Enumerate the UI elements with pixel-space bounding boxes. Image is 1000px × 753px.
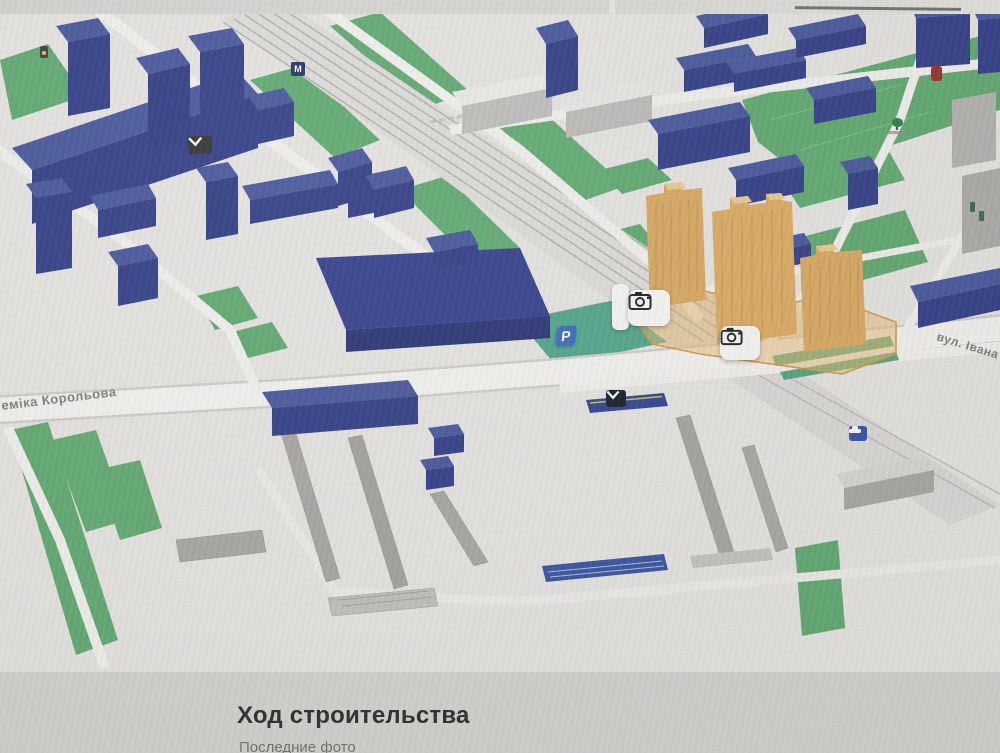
construction-progress-section: Ход строительства Последние фото (0, 672, 1000, 753)
section-subtext: Последние фото (0, 739, 1000, 753)
screen-glare (610, 0, 615, 14)
parking-icon[interactable]: P (555, 325, 577, 347)
small-poi-icon (40, 46, 48, 58)
metro-icon[interactable] (606, 390, 626, 407)
red-poi-icon[interactable] (931, 66, 942, 81)
metro-chevron-icon (188, 136, 204, 148)
window-edge-artifact (795, 6, 961, 11)
tree-trunk (896, 127, 898, 130)
camera-marker-partial[interactable] (612, 284, 629, 330)
tree-icon[interactable] (891, 118, 903, 134)
metro-label: M (294, 64, 302, 74)
metro-chevron-icon (606, 390, 620, 400)
car-glyph (849, 426, 861, 434)
screen-photo: еміка Корольова вул. Івана P (0, 0, 1000, 753)
map-svg: еміка Корольова вул. Івана (0, 0, 1000, 672)
traffic-light-icon (979, 211, 984, 221)
parking-label: P (560, 328, 571, 345)
camera-icon (628, 290, 654, 312)
tree-label-blur (885, 131, 909, 134)
metro-station-icon[interactable]: M (291, 62, 305, 76)
camera-marker-2[interactable] (720, 326, 760, 360)
screen-top-strip (0, 0, 1000, 14)
metro-entrance-icon[interactable] (188, 135, 213, 154)
section-heading: Ход строительства (0, 672, 1000, 730)
tree-crown (892, 118, 903, 127)
camera-marker-1[interactable] (628, 290, 670, 326)
traffic-light-icon (970, 202, 975, 212)
map-canvas[interactable]: еміка Корольова вул. Івана P (0, 0, 1000, 672)
camera-icon (720, 326, 745, 347)
car-icon[interactable] (849, 426, 867, 441)
